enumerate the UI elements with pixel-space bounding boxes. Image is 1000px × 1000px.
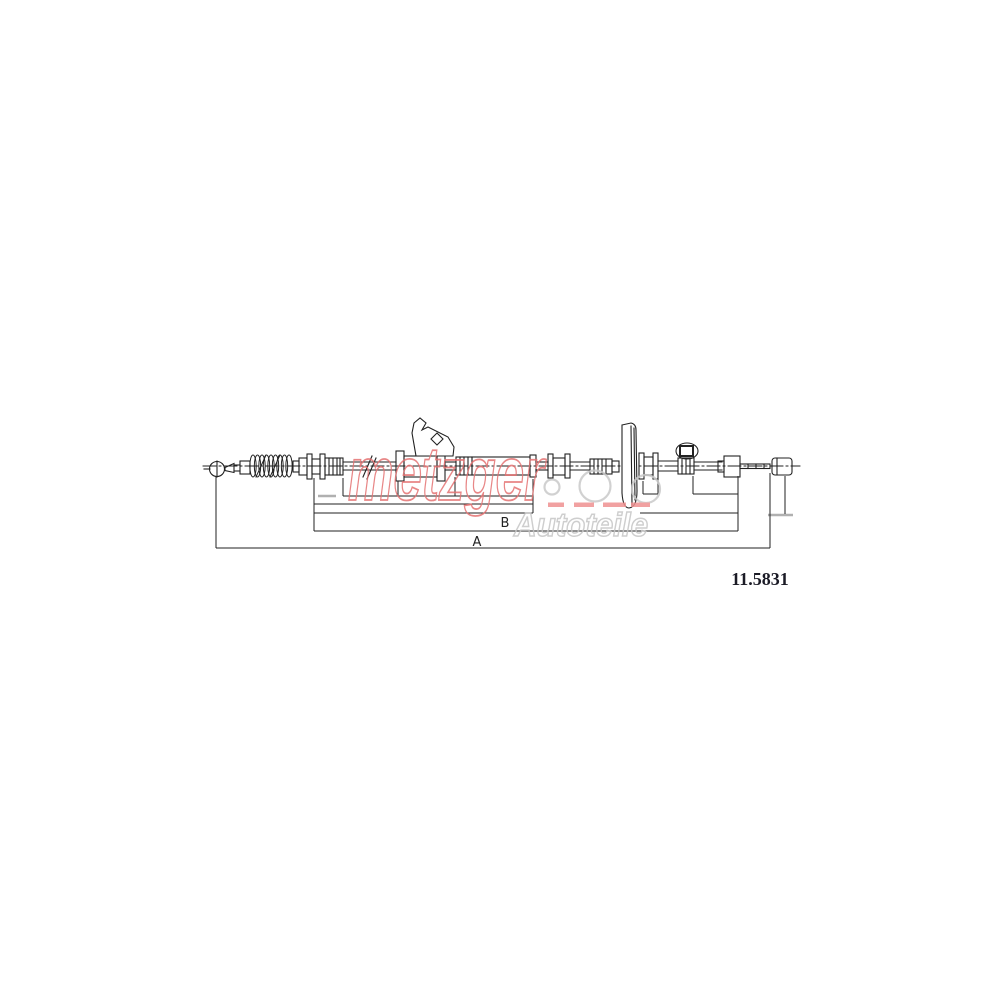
dimension-label-b: B	[501, 516, 510, 531]
product-image-canvas: B A metzger Autoteile 11.5831	[0, 0, 1000, 1000]
left-fittings	[293, 454, 343, 479]
dimension-chain-right	[640, 476, 785, 514]
clamp-keeper	[676, 443, 698, 459]
threaded-end	[694, 456, 792, 477]
brake-cable-technical-diagram: B A metzger Autoteile 11.5831	[0, 0, 1000, 1000]
watermark-suffix-text: Autoteile	[513, 506, 648, 543]
cable-eye-end	[204, 461, 250, 477]
dimension-label-a: A	[473, 535, 482, 550]
watermark-brand-text: metzger	[348, 432, 547, 517]
backing-plate	[622, 423, 637, 508]
part-number: 11.5831	[731, 569, 789, 589]
